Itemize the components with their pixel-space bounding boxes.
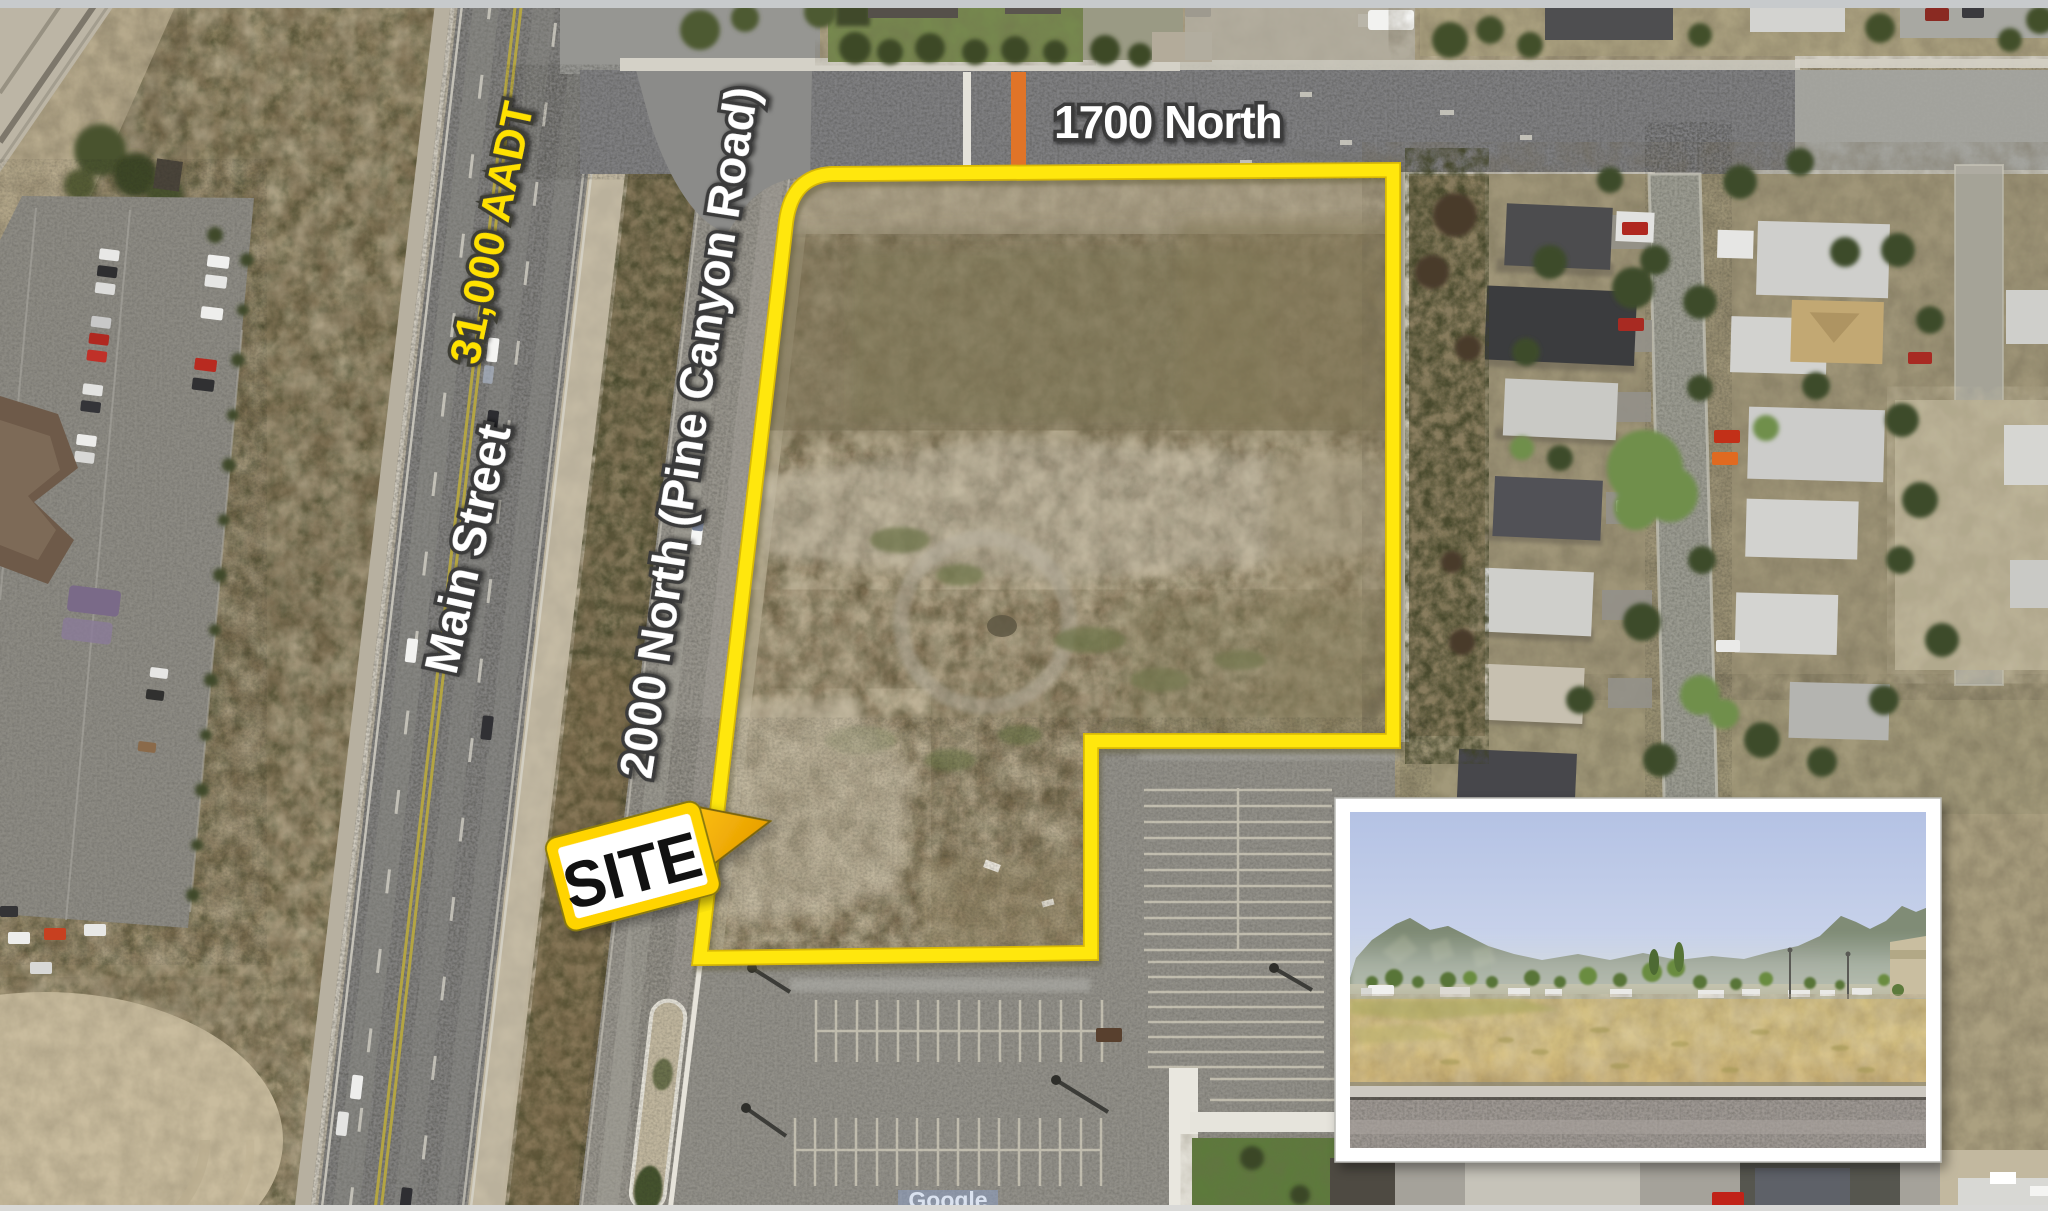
svg-text:1700 North: 1700 North <box>1054 96 1282 148</box>
